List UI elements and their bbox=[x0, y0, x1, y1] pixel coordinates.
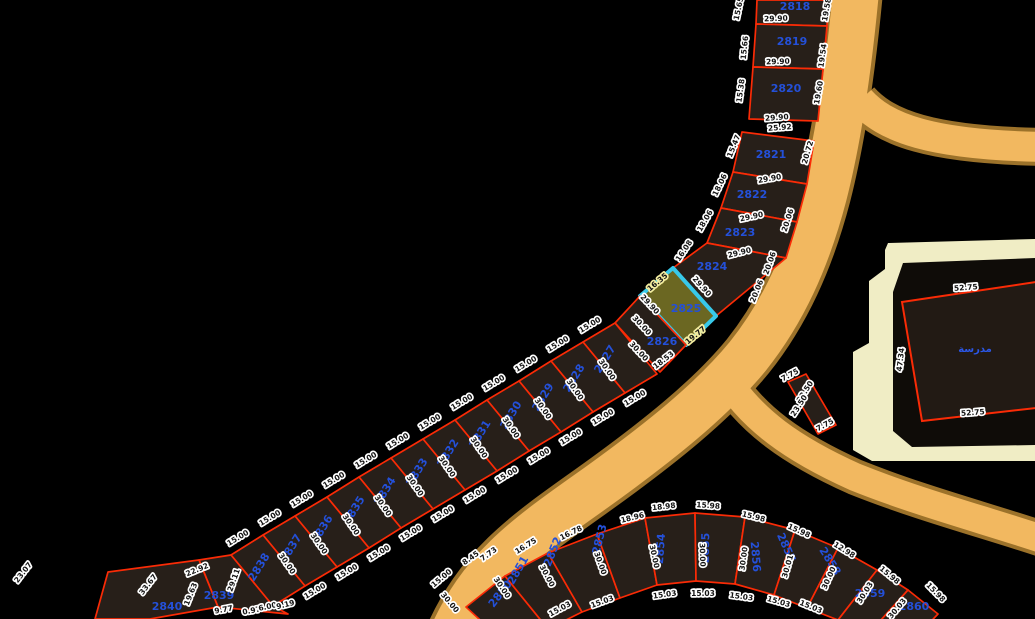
dimension-label: 30.00 bbox=[698, 543, 708, 567]
map-canvas[interactable]: مدرسة 2818281928202821282228232824282528… bbox=[0, 0, 1035, 619]
dimension-label: 23.07 bbox=[12, 560, 34, 584]
dimension-label: 15.03 bbox=[691, 589, 715, 598]
dimension-label: 52.75 bbox=[954, 282, 978, 293]
parcel-number-2819: 2819 bbox=[777, 35, 808, 48]
walled-compound: مدرسة bbox=[853, 239, 1035, 461]
dimension-label: 15.00 bbox=[449, 392, 474, 412]
dimension-label: 15.03 bbox=[729, 590, 754, 602]
parcel-number-2823: 2823 bbox=[725, 226, 756, 239]
dimension-label: 25.92 bbox=[768, 122, 792, 133]
parcel-number-2840: 2840 bbox=[152, 600, 183, 613]
compound-name-label: مدرسة bbox=[958, 344, 992, 355]
dimension-label: 15.03 bbox=[652, 588, 677, 600]
parcel-number-2822: 2822 bbox=[737, 188, 768, 201]
dimension-label: 15.65 bbox=[732, 0, 746, 21]
dimension-label: 29.90 bbox=[764, 14, 788, 24]
dimension-label: 15.66 bbox=[739, 35, 750, 60]
parcel-number-2824: 2824 bbox=[697, 260, 728, 273]
parcel-number-2818: 2818 bbox=[780, 0, 811, 13]
dimension-label: 29.90 bbox=[765, 112, 789, 123]
dimension-label: 52.75 bbox=[961, 407, 985, 418]
dimension-label: 15.98 bbox=[696, 500, 720, 511]
parcel-number-2826: 2826 bbox=[647, 335, 678, 348]
parcel-number-2856: 2856 bbox=[748, 541, 764, 573]
parcel-number-2820: 2820 bbox=[771, 82, 802, 95]
dimension-label: 15.38 bbox=[734, 78, 746, 103]
parcel-number-2821: 2821 bbox=[756, 148, 787, 161]
dimension-label: 18.98 bbox=[651, 501, 676, 512]
parcel-number-2825: 2825 bbox=[671, 302, 702, 315]
dimension-label: 29.90 bbox=[766, 57, 790, 67]
dimension-label: 9.77 bbox=[214, 603, 234, 615]
